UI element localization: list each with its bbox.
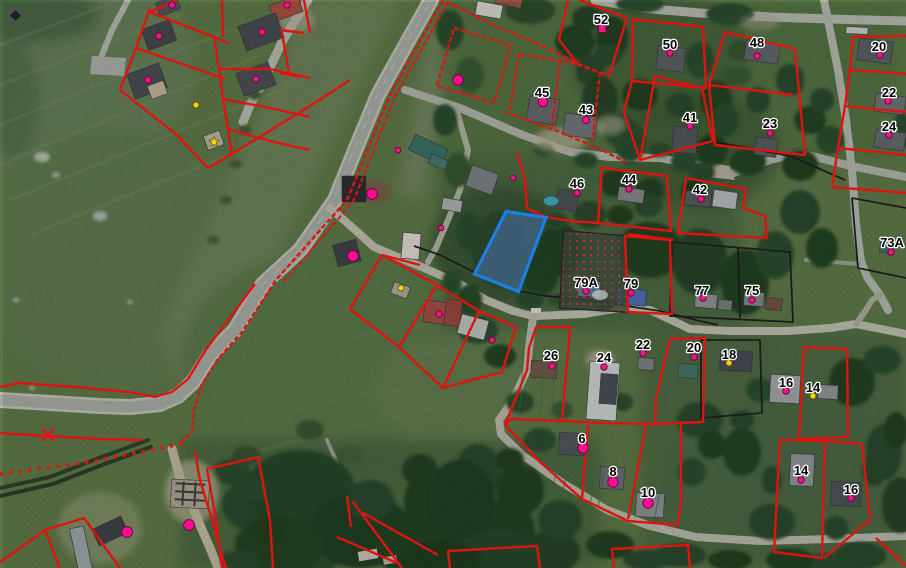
svg-text:48: 48 [750, 35, 764, 50]
svg-text:18: 18 [722, 347, 736, 362]
svg-text:52: 52 [594, 12, 608, 27]
svg-text:24: 24 [882, 119, 897, 134]
svg-text:24: 24 [597, 350, 612, 365]
svg-text:45: 45 [535, 85, 549, 100]
svg-text:73A: 73A [880, 235, 904, 250]
svg-text:43: 43 [579, 102, 593, 117]
svg-text:46: 46 [570, 176, 584, 191]
svg-text:77: 77 [695, 283, 709, 298]
svg-text:44: 44 [622, 172, 637, 187]
svg-text:20: 20 [872, 39, 886, 54]
svg-text:23: 23 [763, 116, 777, 131]
svg-text:16: 16 [844, 482, 858, 497]
svg-text:79: 79 [624, 276, 638, 291]
svg-text:10: 10 [641, 485, 655, 500]
svg-text:75: 75 [745, 283, 759, 298]
svg-text:42: 42 [693, 182, 707, 197]
svg-text:22: 22 [636, 337, 650, 352]
svg-text:16: 16 [779, 375, 793, 390]
svg-text:14: 14 [806, 380, 821, 395]
svg-text:79A: 79A [574, 275, 598, 290]
svg-text:6: 6 [578, 431, 585, 446]
svg-text:50: 50 [663, 37, 677, 52]
svg-text:22: 22 [882, 85, 896, 100]
svg-text:14: 14 [794, 463, 809, 478]
svg-text:41: 41 [683, 110, 697, 125]
svg-text:26: 26 [544, 348, 558, 363]
svg-text:8: 8 [609, 464, 616, 479]
svg-text:20: 20 [687, 340, 701, 355]
